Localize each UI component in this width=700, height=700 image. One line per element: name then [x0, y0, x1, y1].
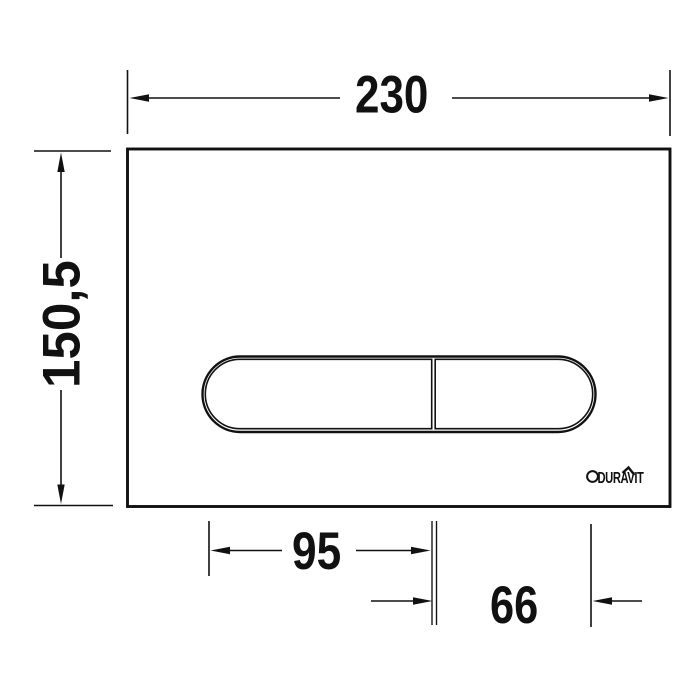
svg-text:95: 95	[292, 522, 341, 581]
svg-text:66: 66	[490, 576, 538, 635]
svg-text:DURAVIT: DURAVIT	[598, 468, 645, 487]
svg-text:150,5: 150,5	[33, 260, 92, 388]
svg-text:230: 230	[355, 66, 428, 125]
